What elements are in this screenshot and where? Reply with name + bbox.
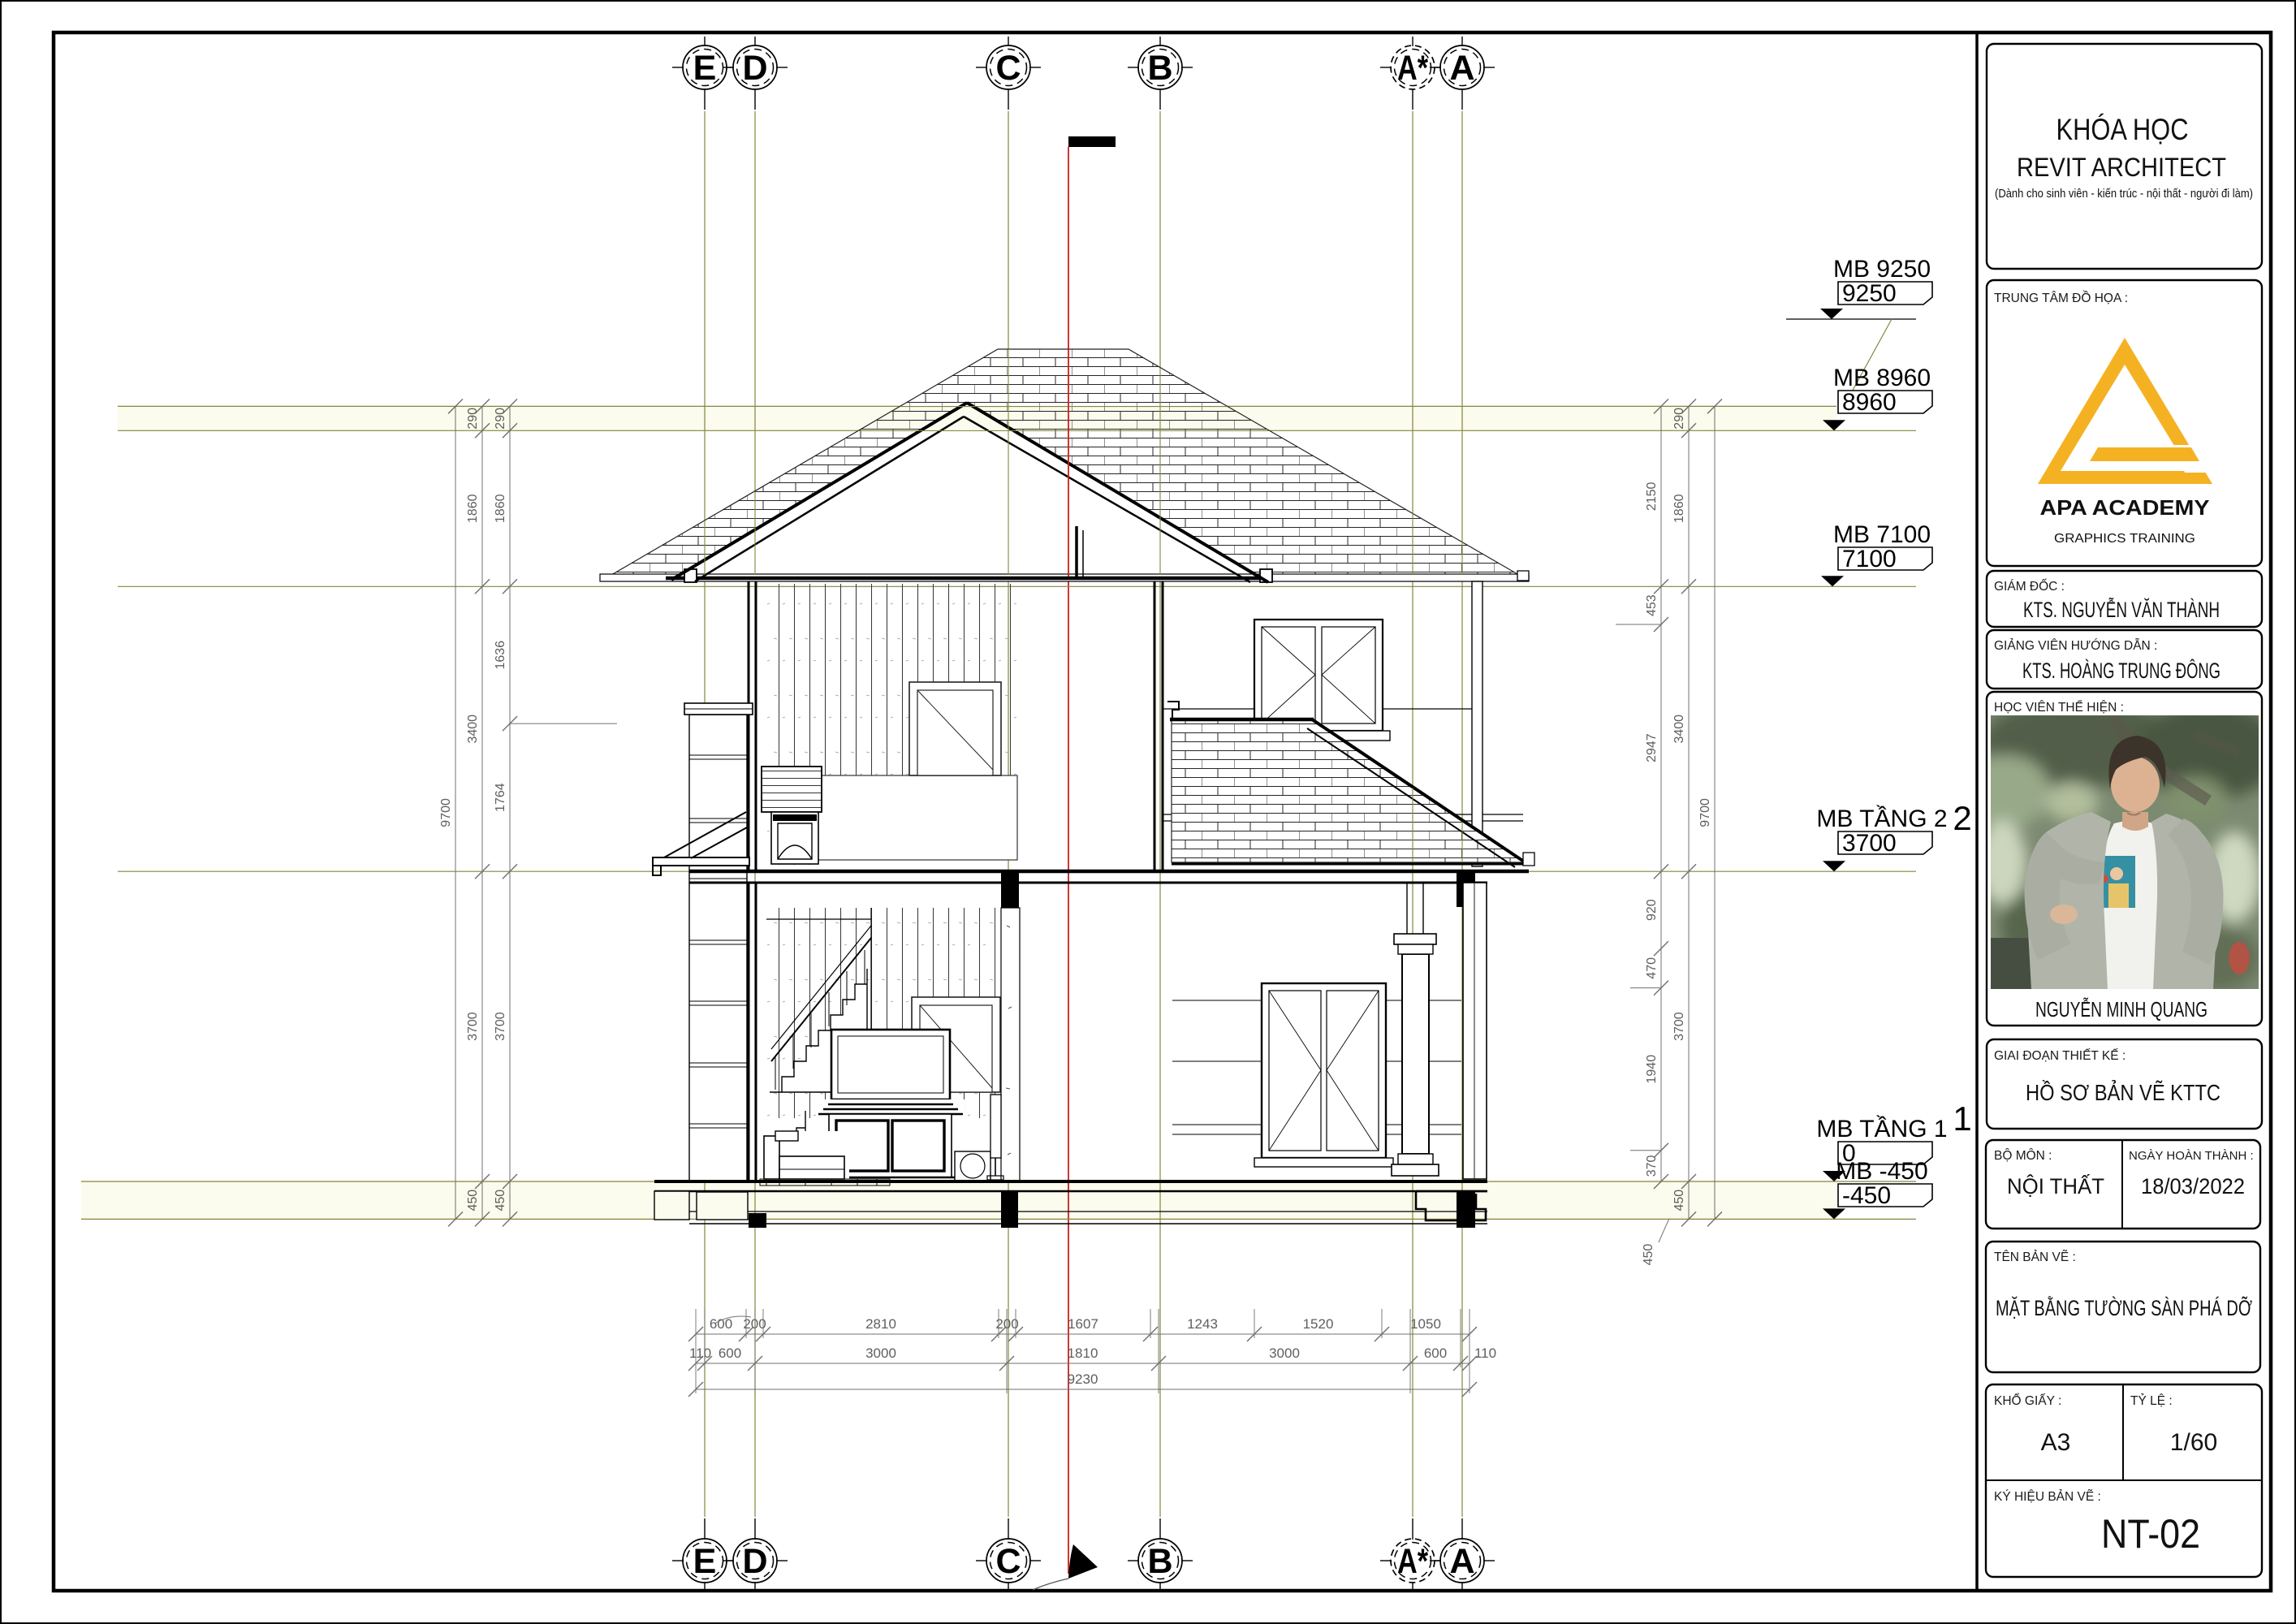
svg-text:KHỔ GIẤY :: KHỔ GIẤY : bbox=[1994, 1393, 2061, 1408]
svg-text:MẶT BẰNG TƯỜNG SÀN PHÁ DỠ: MẶT BẰNG TƯỜNG SÀN PHÁ DỠ bbox=[1996, 1295, 2252, 1320]
svg-text:1636: 1636 bbox=[494, 641, 507, 670]
svg-text:D: D bbox=[742, 1542, 767, 1581]
svg-text:MB TẦNG 2: MB TẦNG 2 bbox=[1816, 805, 1947, 832]
svg-text:NGÀY HOÀN THÀNH :: NGÀY HOÀN THÀNH : bbox=[2129, 1149, 2254, 1163]
svg-text:C: C bbox=[995, 1542, 1021, 1581]
svg-text:200: 200 bbox=[743, 1316, 766, 1332]
svg-text:9700: 9700 bbox=[439, 798, 453, 827]
svg-text:1810: 1810 bbox=[1068, 1345, 1098, 1361]
svg-text:3700: 3700 bbox=[494, 1012, 507, 1041]
svg-text:NGUYỄN MINH QUANG: NGUYỄN MINH QUANG bbox=[2035, 997, 2208, 1021]
svg-text:(Dành cho sinh viên - kiến trú: (Dành cho sinh viên - kiến trúc - nội th… bbox=[1995, 188, 2253, 201]
svg-text:2: 2 bbox=[1953, 799, 1971, 837]
svg-text:A: A bbox=[1449, 49, 1474, 88]
svg-text:470: 470 bbox=[1645, 957, 1659, 979]
svg-text:BỘ MÔN :: BỘ MÔN : bbox=[1994, 1149, 2052, 1163]
svg-text:7100: 7100 bbox=[1842, 546, 1897, 572]
svg-text:A3: A3 bbox=[2041, 1429, 2071, 1456]
svg-text:KHÓA HỌC: KHÓA HỌC bbox=[2056, 113, 2189, 146]
svg-text:1940: 1940 bbox=[1645, 1055, 1659, 1084]
svg-text:453: 453 bbox=[1645, 594, 1659, 616]
svg-text:1/60: 1/60 bbox=[2170, 1429, 2217, 1456]
svg-text:KTS. NGUYỄN VĂN THÀNH: KTS. NGUYỄN VĂN THÀNH bbox=[2023, 597, 2220, 622]
svg-text:9700: 9700 bbox=[1698, 798, 1712, 827]
svg-text:A: A bbox=[1449, 1542, 1474, 1581]
svg-text:600: 600 bbox=[719, 1345, 741, 1361]
svg-text:E: E bbox=[693, 1542, 717, 1581]
svg-text:-450: -450 bbox=[1842, 1182, 1891, 1209]
svg-text:TỶ LỆ :: TỶ LỆ : bbox=[2130, 1394, 2173, 1408]
svg-text:B: B bbox=[1147, 49, 1172, 88]
svg-text:200: 200 bbox=[995, 1316, 1018, 1332]
svg-text:110: 110 bbox=[689, 1345, 711, 1361]
svg-text:GIÁM ĐỐC :: GIÁM ĐỐC : bbox=[1994, 579, 2065, 594]
svg-text:1860: 1860 bbox=[494, 494, 507, 523]
svg-text:1607: 1607 bbox=[1068, 1316, 1098, 1332]
svg-text:18/03/2022: 18/03/2022 bbox=[2141, 1174, 2245, 1199]
svg-text:MB 9250: MB 9250 bbox=[1833, 256, 1931, 283]
svg-text:1243: 1243 bbox=[1187, 1316, 1218, 1332]
svg-text:600: 600 bbox=[1424, 1345, 1447, 1361]
svg-text:3700: 3700 bbox=[1842, 830, 1897, 857]
svg-text:3000: 3000 bbox=[865, 1345, 896, 1361]
svg-text:1050: 1050 bbox=[1410, 1316, 1441, 1332]
svg-text:REVIT ARCHITECT: REVIT ARCHITECT bbox=[2017, 153, 2226, 182]
svg-text:370: 370 bbox=[1645, 1155, 1659, 1177]
svg-text:8960: 8960 bbox=[1842, 389, 1897, 416]
svg-text:TÊN BẢN VẼ :: TÊN BẢN VẼ : bbox=[1994, 1250, 2076, 1264]
svg-text:3700: 3700 bbox=[466, 1012, 480, 1041]
svg-text:9230: 9230 bbox=[1068, 1371, 1098, 1387]
svg-text:MB 8960: MB 8960 bbox=[1833, 365, 1931, 391]
svg-text:A*: A* bbox=[1397, 1542, 1428, 1581]
svg-text:1860: 1860 bbox=[466, 494, 480, 523]
svg-text:9250: 9250 bbox=[1842, 280, 1897, 307]
svg-text:NỘI THẤT: NỘI THẤT bbox=[2007, 1173, 2104, 1199]
svg-text:2150: 2150 bbox=[1645, 482, 1659, 511]
svg-text:APA ACADEMY: APA ACADEMY bbox=[2040, 495, 2210, 520]
svg-text:3400: 3400 bbox=[466, 715, 480, 744]
svg-text:GIẢNG VIÊN HƯỚNG DẪN :: GIẢNG VIÊN HƯỚNG DẪN : bbox=[1994, 639, 2157, 653]
svg-text:MB -450: MB -450 bbox=[1836, 1158, 1927, 1185]
svg-text:KÝ HIỆU BẢN VẼ :: KÝ HIỆU BẢN VẼ : bbox=[1994, 1490, 2101, 1504]
svg-text:C: C bbox=[995, 49, 1021, 88]
svg-text:1: 1 bbox=[1953, 1099, 1971, 1138]
svg-text:600: 600 bbox=[710, 1316, 732, 1332]
svg-text:2947: 2947 bbox=[1645, 733, 1659, 762]
svg-text:A*: A* bbox=[1397, 49, 1428, 88]
svg-text:TRUNG TÂM ĐỒ HỌA :: TRUNG TÂM ĐỒ HỌA : bbox=[1994, 291, 2128, 305]
svg-text:HỌC VIÊN THỂ HIỆN :: HỌC VIÊN THỂ HIỆN : bbox=[1994, 700, 2124, 715]
svg-text:1764: 1764 bbox=[494, 783, 507, 812]
svg-text:MB 7100: MB 7100 bbox=[1833, 521, 1931, 548]
svg-text:GRAPHICS TRAINING: GRAPHICS TRAINING bbox=[2054, 532, 2195, 546]
svg-text:D: D bbox=[742, 49, 767, 88]
svg-text:110: 110 bbox=[1474, 1345, 1496, 1361]
svg-text:1520: 1520 bbox=[1303, 1316, 1334, 1332]
svg-text:3000: 3000 bbox=[1269, 1345, 1300, 1361]
svg-text:B: B bbox=[1147, 1542, 1172, 1581]
svg-text:NT-02: NT-02 bbox=[2101, 1511, 2200, 1557]
svg-text:3400: 3400 bbox=[1672, 715, 1686, 744]
svg-text:3700: 3700 bbox=[1672, 1012, 1686, 1041]
svg-text:450: 450 bbox=[1642, 1244, 1655, 1266]
svg-text:KTS. HOÀNG TRUNG ĐÔNG: KTS. HOÀNG TRUNG ĐÔNG bbox=[2022, 658, 2220, 683]
svg-text:2810: 2810 bbox=[865, 1316, 896, 1332]
svg-text:1860: 1860 bbox=[1672, 494, 1686, 523]
svg-text:E: E bbox=[693, 49, 717, 88]
svg-text:MB TẦNG 1: MB TẦNG 1 bbox=[1816, 1115, 1947, 1142]
svg-text:HỒ SƠ BẢN VẼ KTTC: HỒ SƠ BẢN VẼ KTTC bbox=[2026, 1079, 2220, 1105]
svg-text:GIAI ĐOẠN THIẾT KẾ :: GIAI ĐOẠN THIẾT KẾ : bbox=[1994, 1049, 2126, 1063]
svg-text:920: 920 bbox=[1645, 899, 1659, 921]
